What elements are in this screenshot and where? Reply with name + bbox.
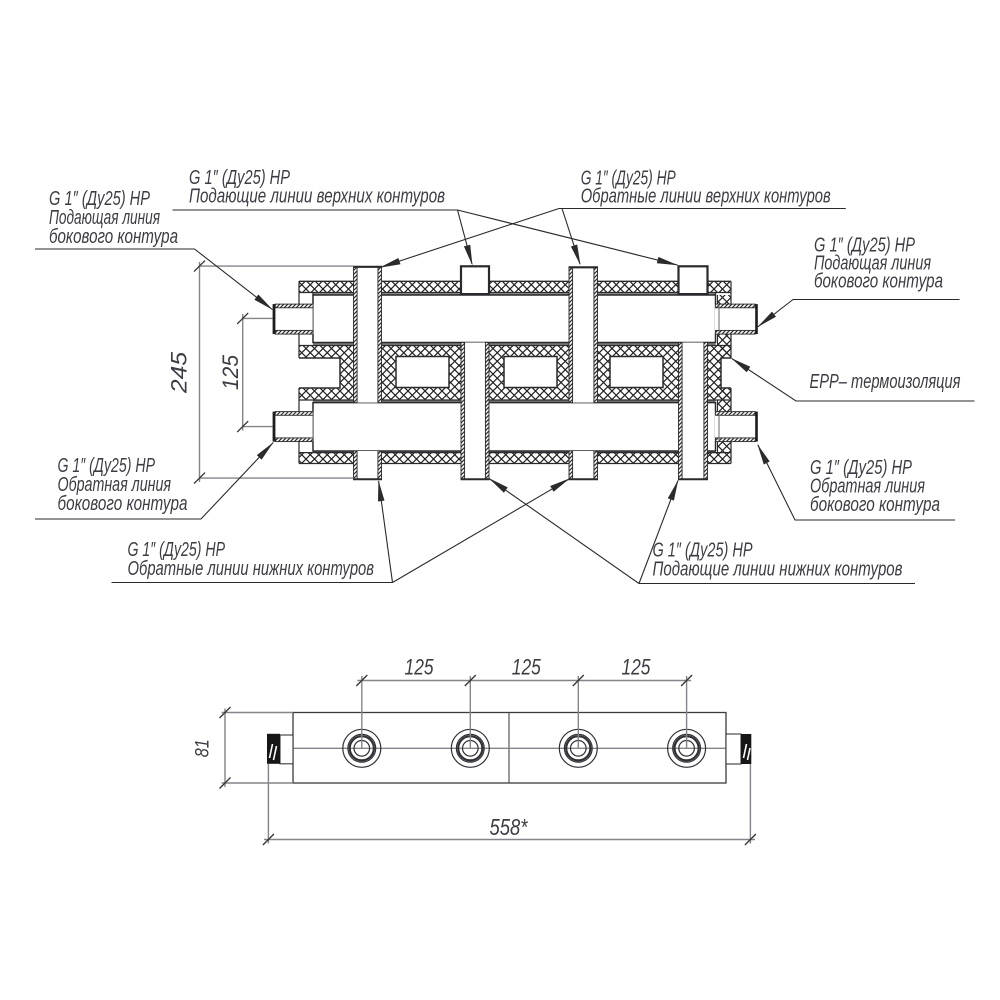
svg-text:125: 125: [218, 354, 243, 390]
svg-text:125: 125: [405, 655, 435, 680]
svg-text:Подающие линии нижних контуров: Подающие линии нижних контуров: [653, 559, 903, 581]
svg-text:558*: 558*: [490, 814, 529, 840]
svg-text:245: 245: [167, 351, 192, 394]
svg-text:Обратные линии верхних контуро: Обратные линии верхних контуров: [581, 186, 831, 208]
svg-text:EPP– термоизоляция: EPP– термоизоляция: [810, 371, 961, 393]
svg-text:125: 125: [621, 655, 651, 680]
svg-text:Обратные линии нижних контуров: Обратные линии нижних контуров: [128, 558, 375, 580]
svg-text:бокового контура: бокового контура: [58, 493, 188, 515]
svg-text:бокового контура: бокового контура: [814, 271, 943, 293]
svg-text:125: 125: [512, 655, 542, 680]
svg-text:бокового контура: бокового контура: [810, 494, 940, 516]
svg-text:Подающие линии верхних контуро: Подающие линии верхних контуров: [189, 186, 445, 208]
svg-text:бокового контура: бокового контура: [49, 226, 178, 248]
svg-text:81: 81: [193, 739, 214, 757]
